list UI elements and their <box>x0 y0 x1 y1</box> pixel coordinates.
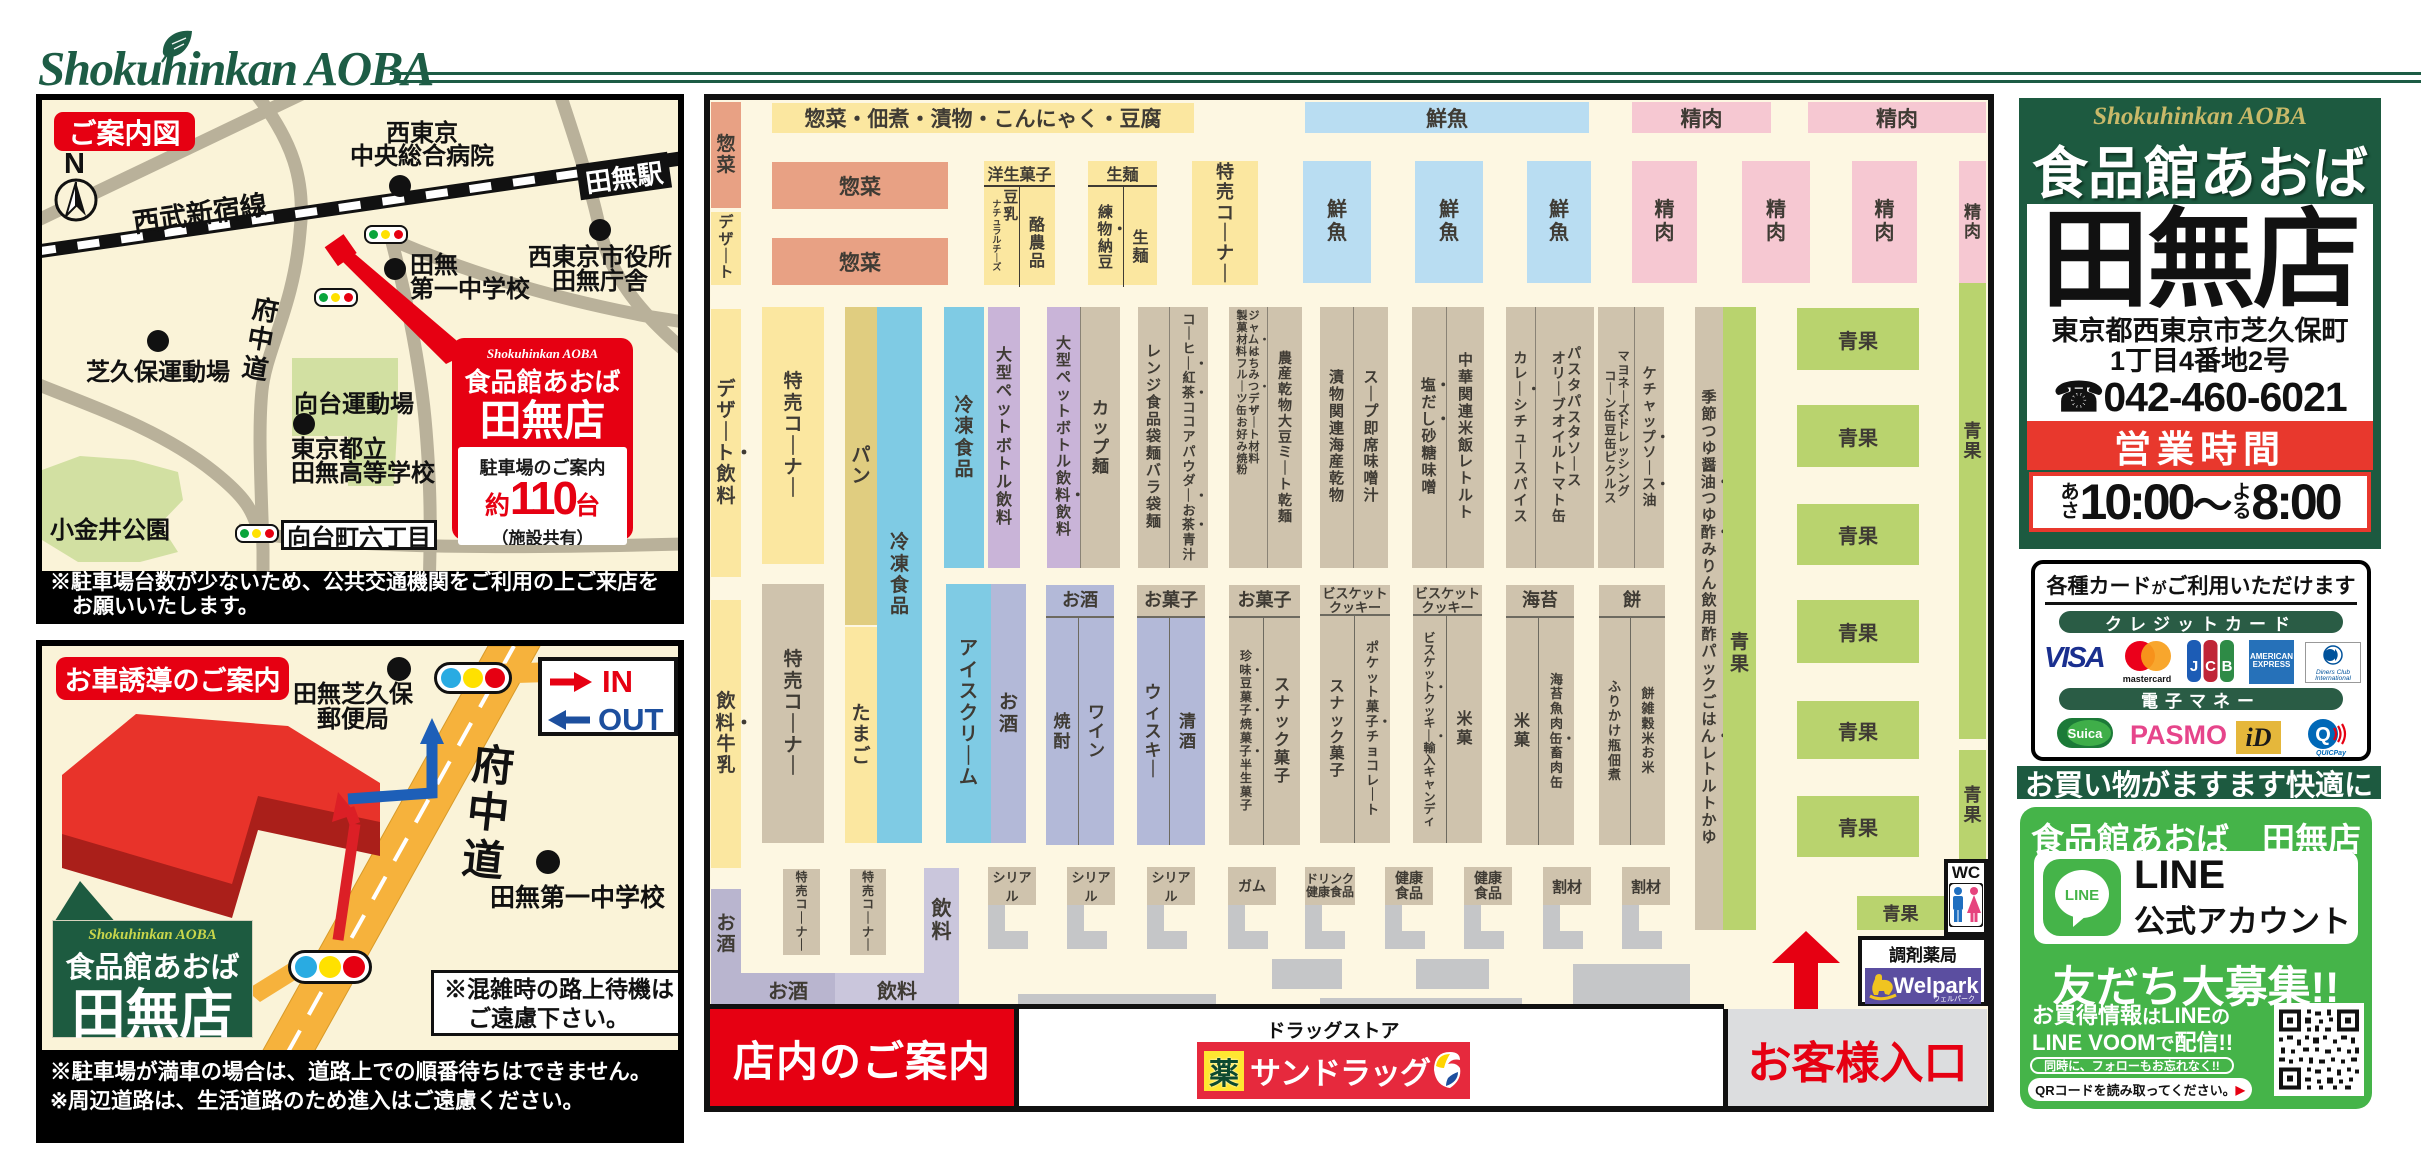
svg-text:B: B <box>2222 658 2233 675</box>
svg-text:QUICPay: QUICPay <box>2316 750 2347 757</box>
svg-text:LINE: LINE <box>2065 887 2099 904</box>
svg-text:J: J <box>2190 658 2198 675</box>
svg-text:Shokuhinkan AOBA: Shokuhinkan AOBA <box>38 41 433 96</box>
svg-text:mastercard: mastercard <box>2123 674 2172 684</box>
svg-text:Suica: Suica <box>2068 726 2103 741</box>
svg-text:C: C <box>2205 658 2216 675</box>
svg-text:Q: Q <box>2315 724 2331 746</box>
